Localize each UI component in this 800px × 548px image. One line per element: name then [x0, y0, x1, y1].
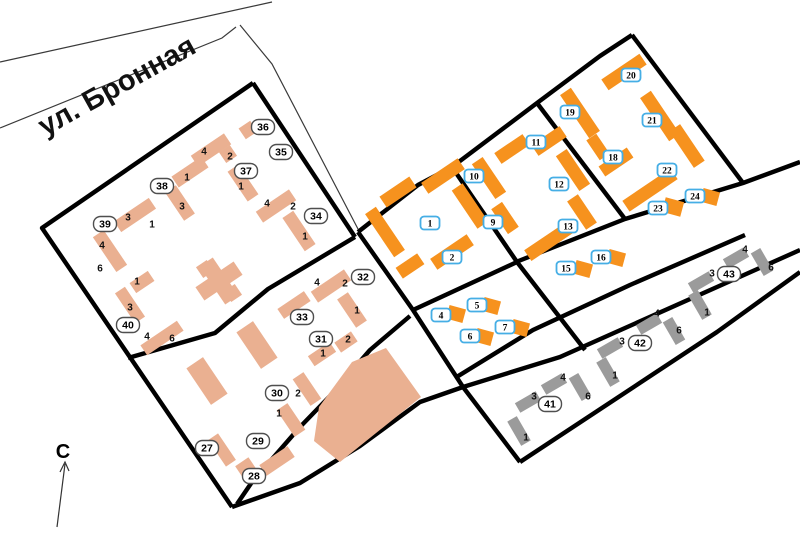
building-marker-34[interactable]: 34 — [305, 209, 328, 224]
marker-number: 19 — [565, 108, 575, 118]
corps-number: 4 — [264, 199, 270, 210]
corps-number: 4 — [560, 373, 566, 384]
building-tan — [186, 357, 227, 405]
corps-number: 1 — [184, 173, 190, 184]
building-marker-22[interactable]: 22 — [658, 164, 677, 177]
marker-number: 30 — [271, 388, 283, 400]
marker-number: 4 — [439, 311, 444, 321]
building-marker-11[interactable]: 11 — [527, 136, 546, 149]
building-marker-37[interactable]: 37 — [235, 164, 258, 179]
marker-number: 35 — [275, 147, 287, 159]
corps-number: 4 — [201, 147, 207, 158]
site-labels-layer: 1245679101112131516181920212223242728293… — [94, 69, 741, 484]
building-tan — [236, 321, 277, 369]
building-marker-18[interactable]: 18 — [604, 151, 623, 164]
corps-number: 1 — [354, 306, 360, 317]
building-marker-5[interactable]: 5 — [468, 299, 487, 312]
marker-number: 16 — [596, 253, 606, 263]
building-org — [494, 134, 529, 164]
marker-number: 5 — [475, 301, 480, 311]
marker-number: 31 — [315, 334, 327, 346]
building-marker-21[interactable]: 21 — [643, 114, 662, 127]
marker-number: 40 — [122, 320, 134, 332]
building-gry — [515, 391, 541, 413]
building-marker-24[interactable]: 24 — [686, 190, 705, 203]
block-boundary-road — [413, 262, 517, 310]
building-marker-33[interactable]: 33 — [291, 310, 314, 325]
building-org — [669, 124, 704, 168]
corps-number: 6 — [97, 264, 103, 275]
marker-number: 10 — [469, 172, 479, 182]
marker-number: 42 — [634, 338, 646, 350]
building-marker-12[interactable]: 12 — [550, 178, 569, 191]
marker-number: 15 — [561, 264, 571, 274]
corps-number: 3 — [179, 202, 185, 213]
corps-number: 4 — [654, 309, 660, 320]
corps-number: 4 — [742, 245, 748, 256]
building-marker-29[interactable]: 29 — [247, 434, 270, 449]
corps-number: 2 — [342, 279, 348, 290]
corps-number: 6 — [585, 392, 591, 403]
building-marker-15[interactable]: 15 — [557, 262, 576, 275]
building-marker-43[interactable]: 43 — [718, 267, 741, 282]
marker-number: 37 — [240, 166, 252, 178]
building-marker-10[interactable]: 10 — [465, 170, 484, 183]
marker-number: 32 — [357, 272, 369, 284]
marker-number: 27 — [201, 443, 213, 455]
building-marker-39[interactable]: 39 — [94, 217, 117, 232]
building-marker-42[interactable]: 42 — [629, 336, 652, 351]
marker-number: 23 — [653, 204, 663, 214]
corps-number: 6 — [169, 334, 175, 345]
building-marker-16[interactable]: 16 — [592, 251, 611, 264]
corps-number: 1 — [238, 182, 244, 193]
corps-number: 2 — [295, 389, 301, 400]
marker-number: 1 — [428, 219, 433, 229]
corps-number: 3 — [709, 269, 715, 280]
marker-number: 12 — [554, 180, 564, 190]
building-org — [396, 253, 425, 278]
building-marker-35[interactable]: 35 — [270, 145, 293, 160]
corps-number: 2 — [345, 335, 351, 346]
marker-number: 21 — [647, 116, 657, 126]
corps-number: 3 — [531, 392, 537, 403]
building-marker-30[interactable]: 30 — [266, 386, 289, 401]
marker-number: 38 — [156, 181, 168, 193]
building-marker-4[interactable]: 4 — [432, 309, 451, 322]
corps-number: 1 — [704, 308, 710, 319]
marker-number: 13 — [563, 222, 573, 232]
building-marker-9[interactable]: 9 — [484, 216, 503, 229]
street-edge-line — [0, 2, 272, 62]
north-arrow-line — [57, 464, 65, 527]
building-marker-27[interactable]: 27 — [196, 441, 219, 456]
building-marker-2[interactable]: 2 — [443, 251, 462, 264]
marker-number: 29 — [252, 436, 264, 448]
building-marker-28[interactable]: 28 — [243, 469, 266, 484]
corps-number: 3 — [619, 337, 625, 348]
north-indicator: С — [56, 441, 70, 527]
site-plan-page: 42113314613464214212121346134613461 1245… — [0, 0, 800, 548]
building-gry — [663, 317, 686, 345]
corps-number: 2 — [290, 202, 296, 213]
building-marker-13[interactable]: 13 — [559, 220, 578, 233]
marker-number: 22 — [662, 166, 672, 176]
marker-number: 28 — [248, 471, 260, 483]
corps-numbers-layer: 42113314613464214212121346134613461 — [97, 147, 774, 444]
corps-number: 1 — [302, 232, 308, 243]
north-label: С — [56, 441, 70, 463]
marker-number: 20 — [626, 71, 636, 81]
corps-number: 6 — [768, 263, 774, 274]
street-name-label: ул. Бронная — [33, 30, 201, 143]
corps-number: 1 — [320, 349, 326, 360]
marker-number: 2 — [450, 253, 455, 263]
building-marker-1[interactable]: 1 — [421, 217, 440, 230]
site-plan-map: 42113314613464214212121346134613461 1245… — [0, 0, 800, 548]
marker-number: 24 — [690, 192, 700, 202]
building-marker-36[interactable]: 36 — [252, 120, 275, 135]
block-boundary-road — [520, 272, 800, 462]
corps-number: 4 — [99, 241, 105, 252]
marker-number: 43 — [723, 269, 735, 281]
building-marker-32[interactable]: 32 — [352, 270, 375, 285]
building-marker-6[interactable]: 6 — [461, 330, 480, 343]
corps-number: 2 — [227, 152, 233, 163]
corps-number: 1 — [523, 433, 529, 444]
marker-number: 39 — [99, 219, 111, 231]
building-tan — [171, 157, 208, 188]
corps-number: 1 — [134, 277, 140, 288]
marker-number: 6 — [468, 332, 473, 342]
building-marker-20[interactable]: 20 — [622, 69, 641, 82]
marker-number: 18 — [608, 153, 618, 163]
corps-number: 1 — [149, 220, 155, 231]
building-marker-41[interactable]: 41 — [539, 397, 562, 412]
corps-number: 6 — [676, 326, 682, 337]
building-marker-23[interactable]: 23 — [649, 202, 668, 215]
building-tan — [337, 292, 367, 327]
building-marker-38[interactable]: 38 — [151, 179, 174, 194]
marker-number: 36 — [257, 122, 269, 134]
marker-number: 11 — [532, 138, 541, 148]
building-marker-31[interactable]: 31 — [310, 332, 333, 347]
marker-number: 34 — [310, 211, 322, 223]
corps-number: 1 — [612, 371, 618, 382]
marker-number: 7 — [503, 323, 508, 333]
building-marker-7[interactable]: 7 — [496, 321, 515, 334]
corps-number: 4 — [144, 332, 150, 343]
roads-layer — [42, 35, 800, 507]
building-large-tan — [314, 348, 421, 462]
corps-number: 1 — [276, 409, 282, 420]
corps-number: 3 — [125, 213, 131, 224]
building-marker-40[interactable]: 40 — [117, 318, 140, 333]
corps-number: 3 — [127, 303, 133, 314]
marker-number: 41 — [544, 399, 556, 411]
marker-number: 33 — [296, 312, 308, 324]
building-marker-19[interactable]: 19 — [561, 106, 580, 119]
corps-number: 4 — [314, 278, 320, 289]
marker-number: 9 — [491, 218, 496, 228]
